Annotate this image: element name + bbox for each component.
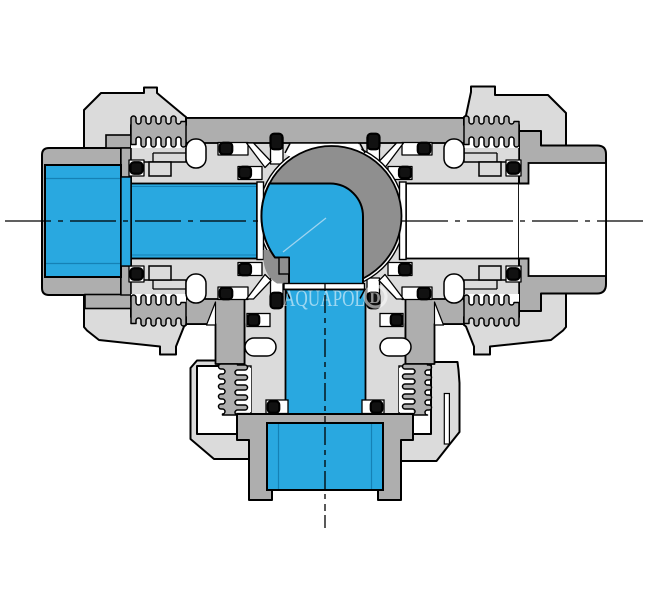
svg-text:AQUAPOL: AQUAPOL [283, 286, 365, 311]
